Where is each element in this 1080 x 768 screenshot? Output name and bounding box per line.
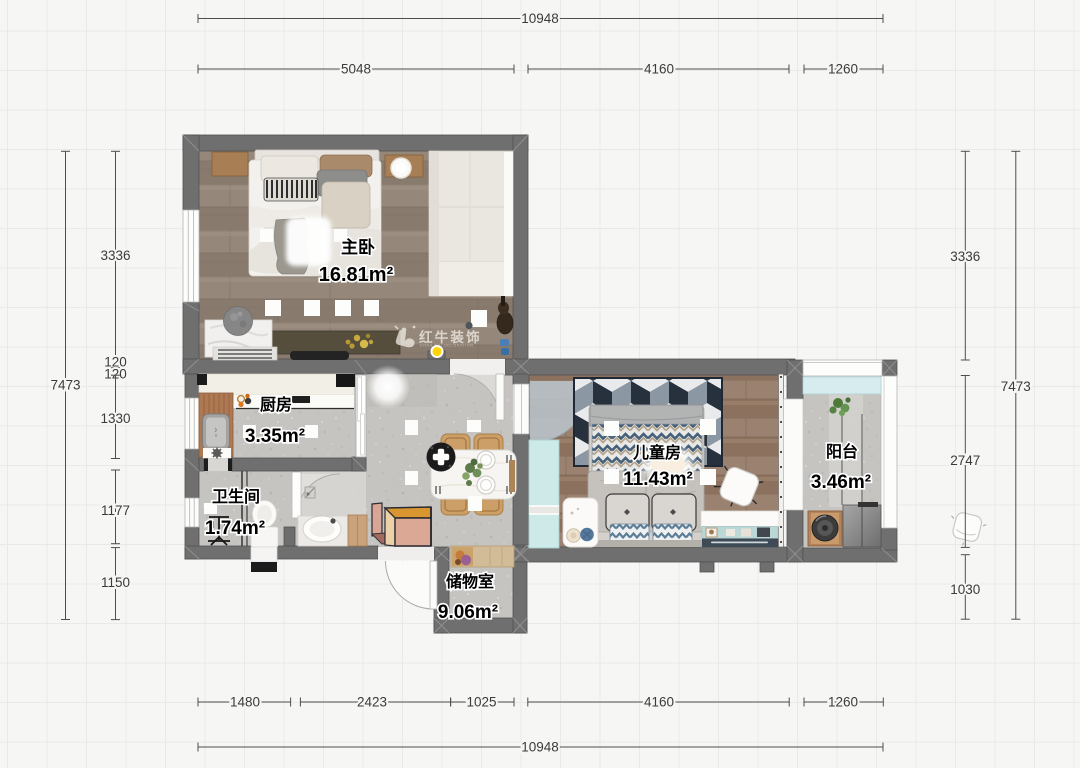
svg-text:10948: 10948	[521, 11, 559, 26]
svg-text:11.43m²: 11.43m²	[623, 469, 693, 490]
svg-text:3.35m²: 3.35m²	[245, 426, 305, 447]
svg-text:7473: 7473	[1001, 379, 1031, 394]
svg-text:1025: 1025	[466, 695, 496, 710]
svg-text:1260: 1260	[828, 695, 858, 710]
svg-text:1.74m²: 1.74m²	[205, 518, 265, 539]
svg-text:1177: 1177	[101, 503, 130, 518]
svg-text:10948: 10948	[521, 740, 559, 755]
svg-text:3.46m²: 3.46m²	[811, 472, 871, 493]
svg-text:4160: 4160	[644, 62, 674, 77]
svg-text:主卧: 主卧	[341, 237, 375, 257]
svg-text:16.81m²: 16.81m²	[319, 264, 394, 286]
svg-text:HONG NIU DECORATION: HONG NIU DECORATION	[420, 344, 474, 348]
svg-text:1260: 1260	[828, 62, 858, 77]
svg-text:3336: 3336	[100, 248, 130, 263]
svg-text:1480: 1480	[230, 695, 260, 710]
svg-text:厨房: 厨房	[260, 395, 292, 414]
svg-text:阳台: 阳台	[826, 442, 858, 461]
svg-text:儿童房: 儿童房	[632, 443, 681, 462]
svg-text:7473: 7473	[50, 378, 80, 393]
svg-text:2423: 2423	[357, 695, 387, 710]
svg-text:4160: 4160	[644, 695, 674, 710]
svg-text:1030: 1030	[950, 582, 980, 597]
svg-text:1330: 1330	[100, 411, 130, 426]
svg-text:储物室: 储物室	[445, 572, 494, 591]
svg-text:2747: 2747	[950, 453, 980, 468]
svg-text:5048: 5048	[341, 62, 371, 77]
svg-text:1150: 1150	[101, 575, 130, 590]
svg-text:3336: 3336	[950, 249, 980, 264]
svg-text:9.06m²: 9.06m²	[438, 602, 498, 623]
svg-text:卫生间: 卫生间	[212, 487, 260, 506]
